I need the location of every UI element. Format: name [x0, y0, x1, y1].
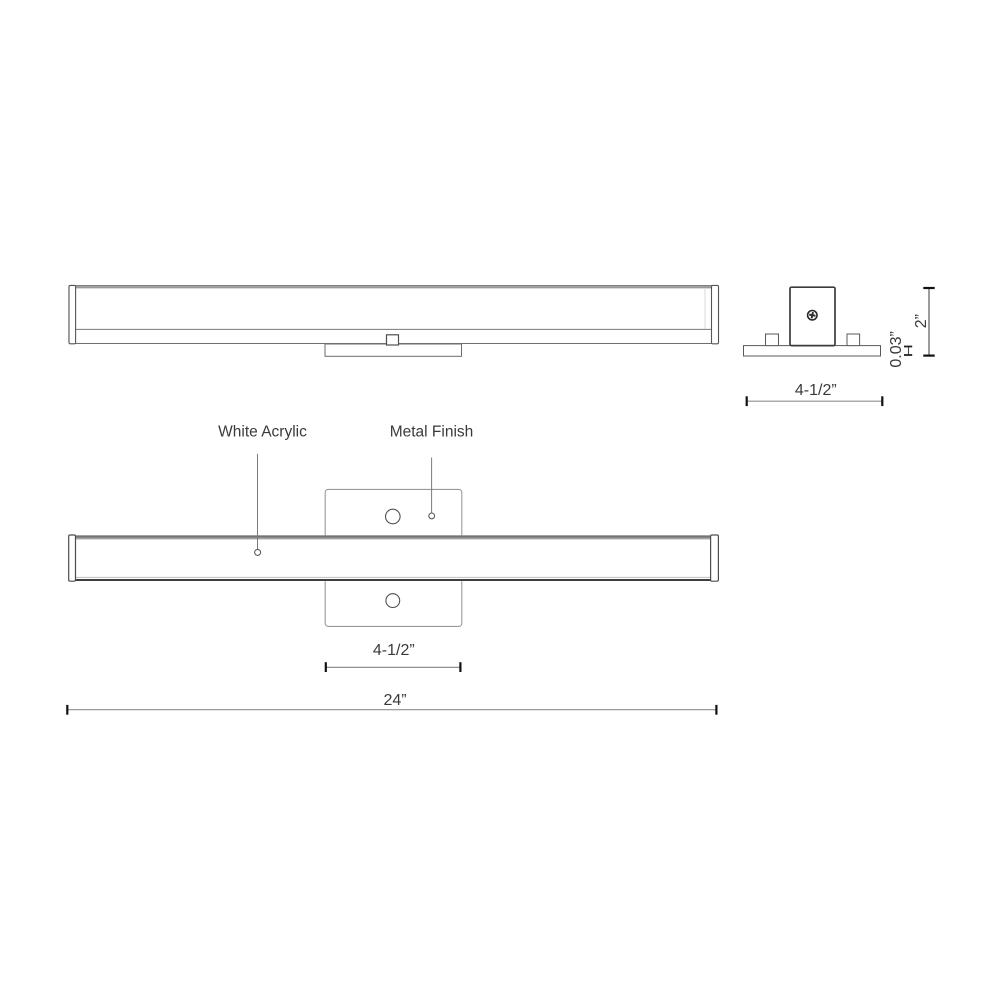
- svg-text:2”: 2”: [913, 314, 930, 328]
- svg-text:Metal Finish: Metal Finish: [390, 423, 474, 440]
- svg-text:0.03”: 0.03”: [888, 331, 905, 367]
- svg-text:24”: 24”: [383, 692, 406, 709]
- svg-text:White Acrylic: White Acrylic: [218, 423, 307, 440]
- svg-text:4-1/2”: 4-1/2”: [373, 642, 415, 659]
- svg-text:4-1/2”: 4-1/2”: [795, 382, 837, 399]
